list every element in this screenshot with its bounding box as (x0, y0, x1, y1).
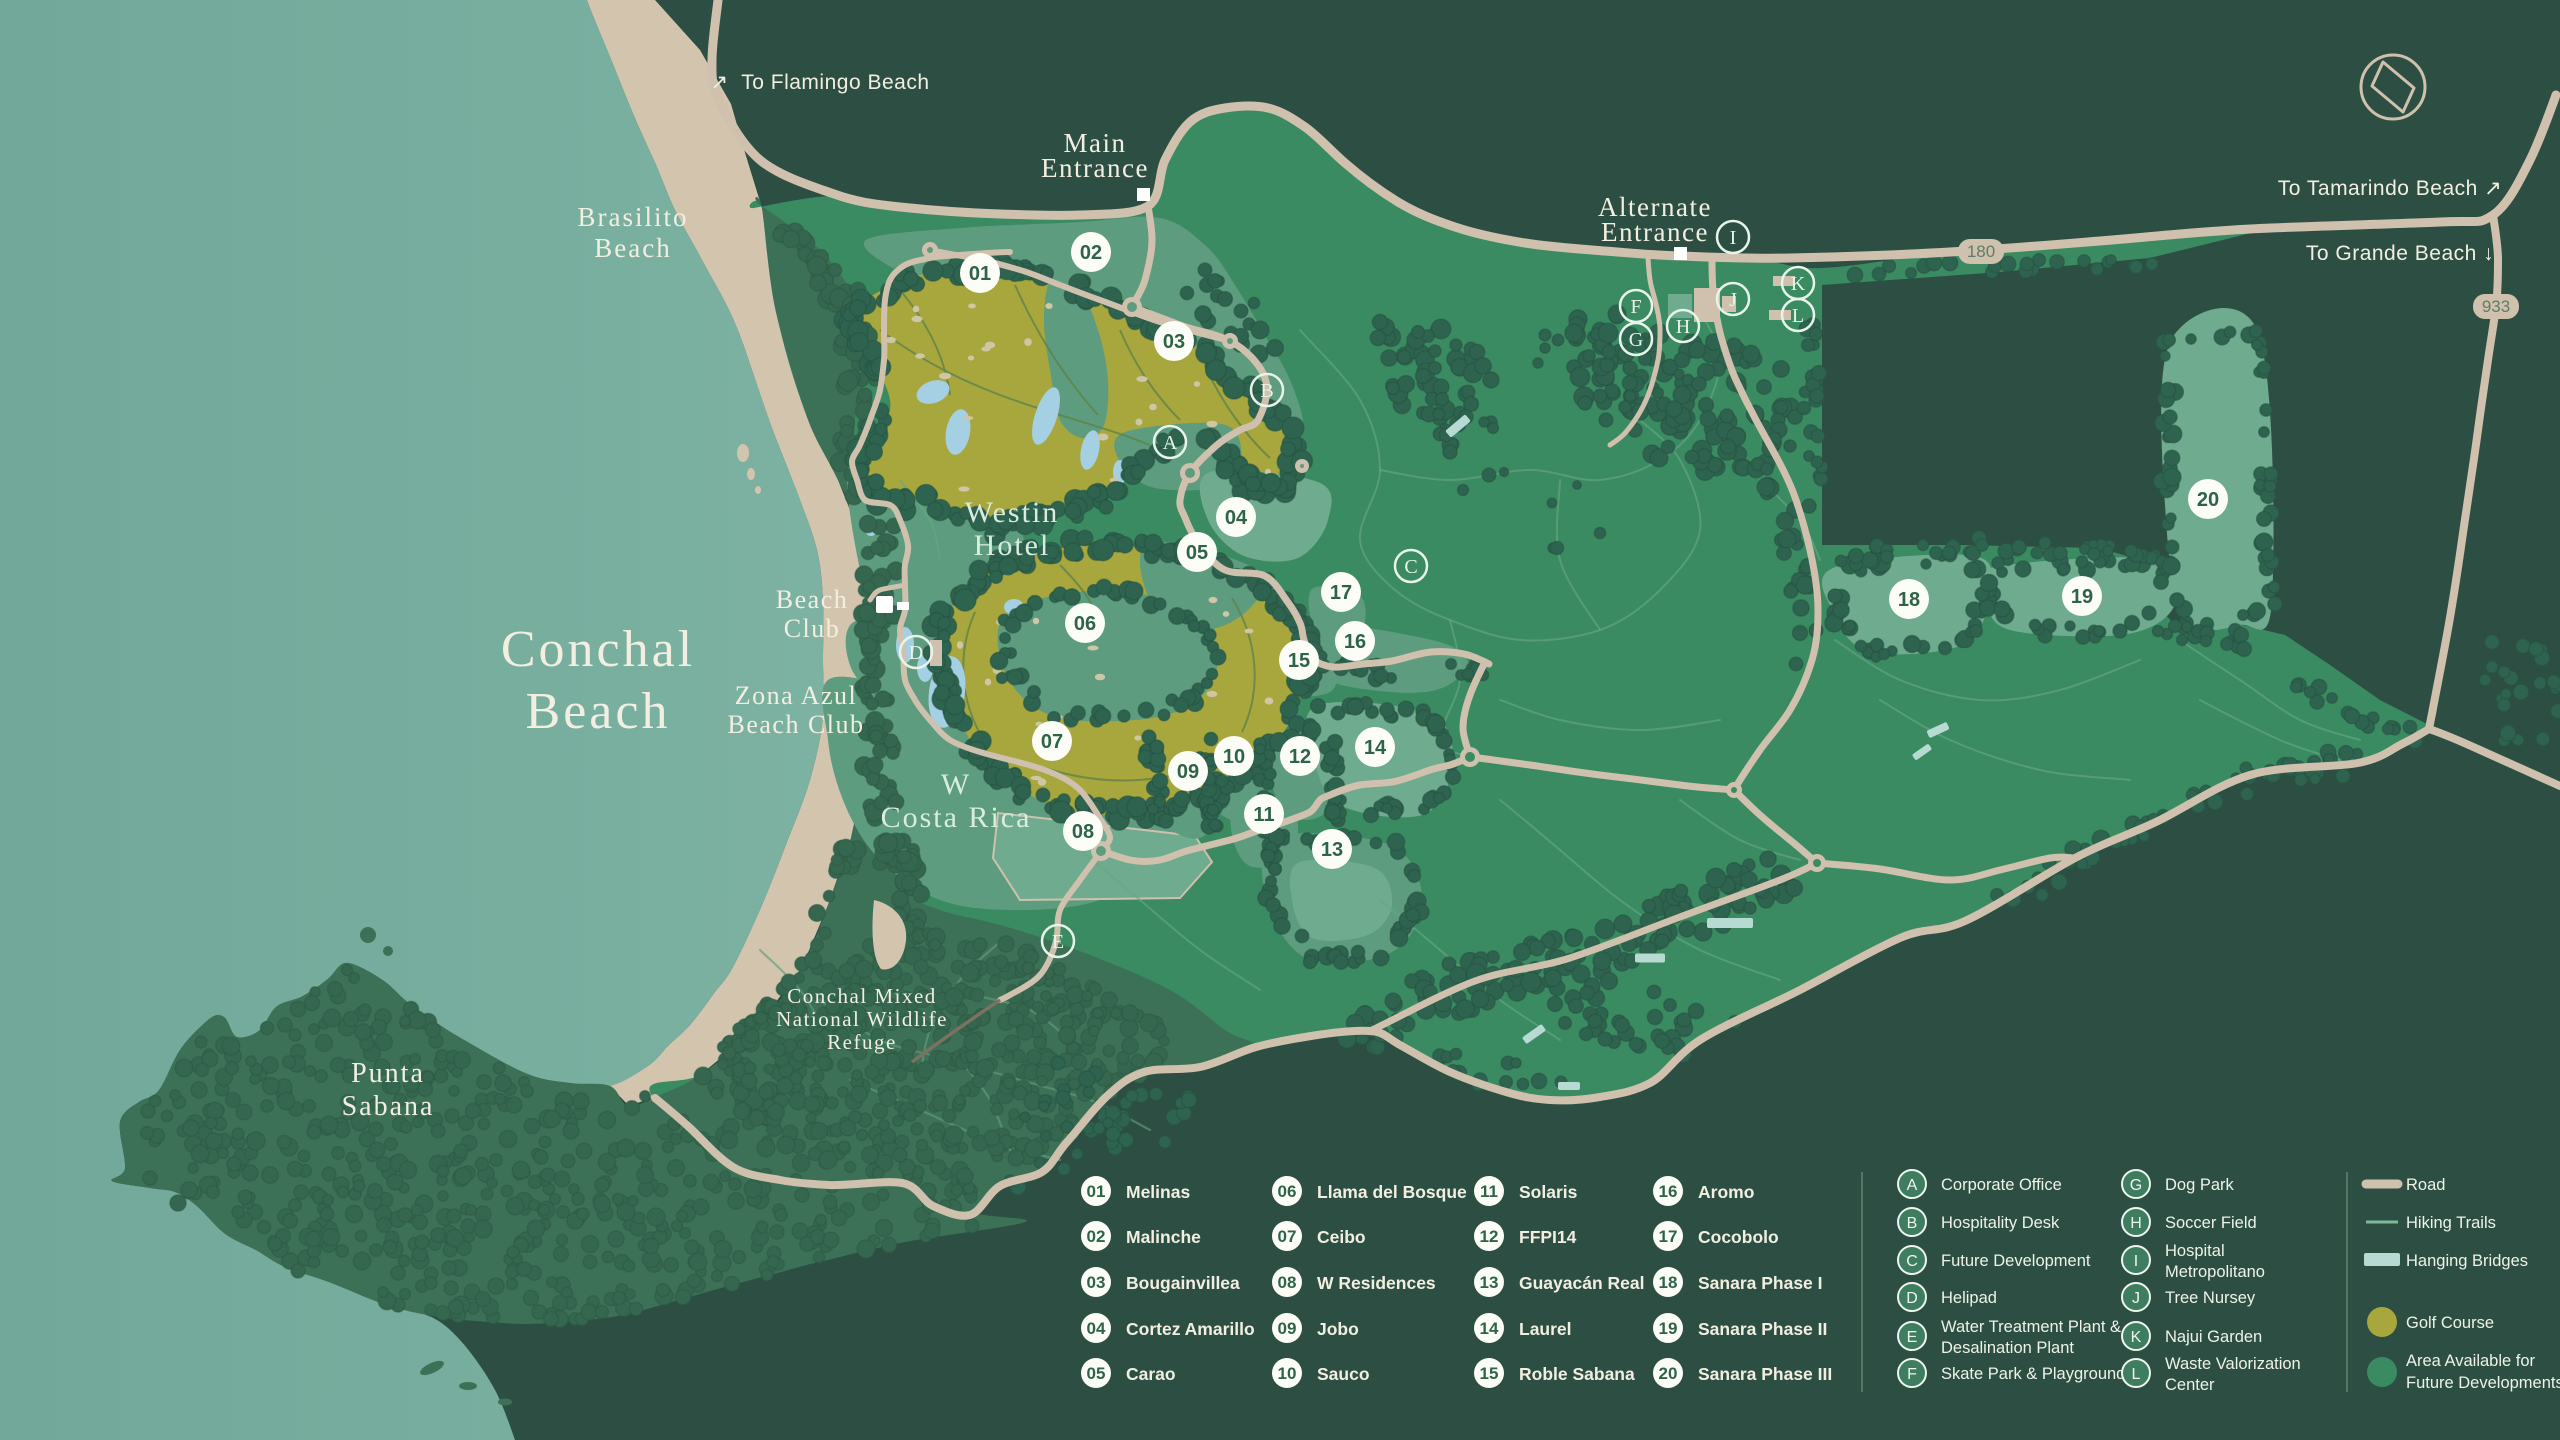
svg-text:G: G (1629, 329, 1643, 351)
svg-text:20: 20 (2197, 489, 2219, 511)
svg-text:Llama del Bosque: Llama del Bosque (1317, 1182, 1467, 1202)
svg-text:J: J (1729, 289, 1737, 311)
svg-text:Hiking Trails: Hiking Trails (2406, 1214, 2496, 1232)
svg-text:11: 11 (1480, 1182, 1498, 1201)
svg-text:Waste Valorization: Waste Valorization (2165, 1355, 2301, 1373)
svg-text:14: 14 (1364, 737, 1387, 759)
svg-text:Road: Road (2406, 1176, 2445, 1194)
svg-text:To Grande Beach ↓: To Grande Beach ↓ (2306, 242, 2494, 265)
svg-text:Water Treatment Plant &: Water Treatment Plant & (1941, 1318, 2121, 1336)
svg-text:↗ To Flamingo Beach: ↗ To Flamingo Beach (710, 71, 929, 94)
svg-text:Golf Course: Golf Course (2406, 1314, 2494, 1332)
svg-text:Metropolitano: Metropolitano (2165, 1263, 2265, 1281)
svg-text:18: 18 (1898, 589, 1920, 611)
svg-text:Jobo: Jobo (1317, 1319, 1359, 1339)
svg-text:Bougainvillea: Bougainvillea (1126, 1273, 1240, 1293)
svg-text:05: 05 (1087, 1364, 1106, 1383)
svg-text:15: 15 (1480, 1364, 1499, 1383)
svg-text:07: 07 (1041, 731, 1063, 753)
svg-text:E: E (1907, 1329, 1918, 1346)
svg-text:Cocobolo: Cocobolo (1698, 1227, 1779, 1247)
svg-text:AlternateEntrance: AlternateEntrance (1598, 192, 1712, 247)
svg-text:01: 01 (1087, 1182, 1106, 1201)
svg-text:04: 04 (1225, 507, 1248, 529)
svg-text:02: 02 (1080, 242, 1102, 264)
svg-text:12: 12 (1480, 1227, 1499, 1246)
svg-text:Solaris: Solaris (1519, 1182, 1578, 1202)
svg-text:L: L (1792, 305, 1804, 327)
svg-text:17: 17 (1330, 582, 1352, 604)
svg-text:Carao: Carao (1126, 1364, 1176, 1384)
svg-text:L: L (2132, 1366, 2141, 1383)
svg-text:16: 16 (1344, 631, 1366, 653)
svg-text:D: D (909, 642, 923, 664)
svg-text:18: 18 (1659, 1273, 1678, 1292)
svg-text:I: I (1730, 227, 1737, 249)
svg-text:A: A (1907, 1177, 1918, 1194)
svg-text:Melinas: Melinas (1126, 1182, 1190, 1202)
svg-text:FFPI14: FFPI14 (1519, 1227, 1577, 1247)
svg-text:04: 04 (1087, 1319, 1106, 1338)
svg-text:Helipad: Helipad (1941, 1289, 1997, 1307)
svg-text:Hospital: Hospital (2165, 1242, 2225, 1260)
svg-text:Area Available for: Area Available for (2406, 1352, 2536, 1370)
svg-text:G: G (2130, 1177, 2142, 1194)
svg-text:Malinche: Malinche (1126, 1227, 1201, 1247)
svg-text:Laurel: Laurel (1519, 1319, 1572, 1339)
svg-text:F: F (1630, 296, 1641, 318)
svg-text:C: C (1404, 556, 1417, 578)
svg-text:Future Development: Future Development (1941, 1252, 2091, 1270)
svg-text:A: A (1163, 432, 1178, 454)
svg-text:BeachClub: BeachClub (776, 585, 848, 643)
svg-text:14: 14 (1480, 1319, 1499, 1338)
svg-text:Roble Sabana: Roble Sabana (1519, 1364, 1635, 1384)
svg-text:933: 933 (2482, 297, 2510, 316)
svg-text:K: K (1791, 273, 1806, 295)
svg-text:20: 20 (1659, 1364, 1678, 1383)
svg-text:17: 17 (1659, 1227, 1678, 1246)
svg-text:05: 05 (1186, 542, 1208, 564)
svg-text:Guayacán Real: Guayacán Real (1519, 1273, 1644, 1293)
svg-text:Sauco: Sauco (1317, 1364, 1370, 1384)
svg-text:12: 12 (1289, 746, 1311, 768)
svg-text:Najui Garden: Najui Garden (2165, 1328, 2262, 1346)
svg-text:03: 03 (1163, 331, 1185, 353)
svg-text:K: K (2131, 1329, 2142, 1346)
svg-text:Aromo: Aromo (1698, 1182, 1754, 1202)
svg-text:11: 11 (1253, 804, 1274, 826)
svg-text:Soccer Field: Soccer Field (2165, 1214, 2257, 1232)
svg-text:19: 19 (2071, 586, 2093, 608)
svg-text:07: 07 (1278, 1227, 1297, 1246)
svg-text:Center: Center (2165, 1376, 2215, 1394)
svg-text:09: 09 (1278, 1319, 1297, 1338)
svg-text:E: E (1052, 931, 1064, 953)
svg-text:180: 180 (1967, 242, 1995, 261)
svg-text:Hanging Bridges: Hanging Bridges (2406, 1252, 2528, 1270)
svg-text:Corporate Office: Corporate Office (1941, 1176, 2062, 1194)
svg-text:13: 13 (1480, 1273, 1499, 1292)
svg-text:Future Developments: Future Developments (2406, 1374, 2560, 1392)
svg-text:02: 02 (1087, 1227, 1106, 1246)
svg-text:Skate Park & Playground: Skate Park & Playground (1941, 1365, 2125, 1383)
svg-text:Ceibo: Ceibo (1317, 1227, 1366, 1247)
svg-text:13: 13 (1321, 839, 1343, 861)
svg-text:03: 03 (1087, 1273, 1106, 1292)
svg-text:Cortez Amarillo: Cortez Amarillo (1126, 1319, 1255, 1339)
svg-text:D: D (1906, 1290, 1918, 1307)
svg-text:I: I (2134, 1253, 2138, 1270)
svg-text:B: B (1260, 380, 1273, 402)
svg-text:Hospitality Desk: Hospitality Desk (1941, 1214, 2060, 1232)
svg-text:WestinHotel: WestinHotel (965, 496, 1060, 562)
svg-text:Desalination Plant: Desalination Plant (1941, 1339, 2074, 1357)
svg-text:C: C (1906, 1253, 1918, 1270)
svg-text:Zona AzulBeach Club: Zona AzulBeach Club (727, 681, 864, 739)
svg-text:F: F (1907, 1366, 1917, 1383)
svg-text:10: 10 (1278, 1364, 1297, 1383)
svg-text:08: 08 (1278, 1273, 1297, 1292)
svg-text:W Residences: W Residences (1317, 1273, 1436, 1293)
svg-text:H: H (1676, 316, 1690, 338)
svg-text:01: 01 (969, 263, 991, 285)
svg-text:B: B (1907, 1215, 1918, 1232)
svg-text:08: 08 (1072, 821, 1094, 843)
svg-text:06: 06 (1278, 1182, 1297, 1201)
svg-text:Sanara Phase II: Sanara Phase II (1698, 1319, 1827, 1339)
svg-text:J: J (2132, 1290, 2140, 1307)
svg-text:Sanara Phase III: Sanara Phase III (1698, 1364, 1832, 1384)
svg-text:09: 09 (1177, 761, 1199, 783)
svg-text:16: 16 (1659, 1182, 1678, 1201)
svg-text:19: 19 (1659, 1319, 1678, 1338)
svg-text:Tree Nursey: Tree Nursey (2165, 1289, 2256, 1307)
svg-text:15: 15 (1288, 650, 1310, 672)
svg-text:H: H (2130, 1215, 2142, 1232)
svg-text:To Tamarindo Beach ↗: To Tamarindo Beach ↗ (2278, 177, 2503, 200)
svg-text:06: 06 (1074, 613, 1096, 635)
svg-text:10: 10 (1223, 746, 1245, 768)
svg-text:Dog Park: Dog Park (2165, 1176, 2235, 1194)
svg-text:Sanara Phase I: Sanara Phase I (1698, 1273, 1823, 1293)
